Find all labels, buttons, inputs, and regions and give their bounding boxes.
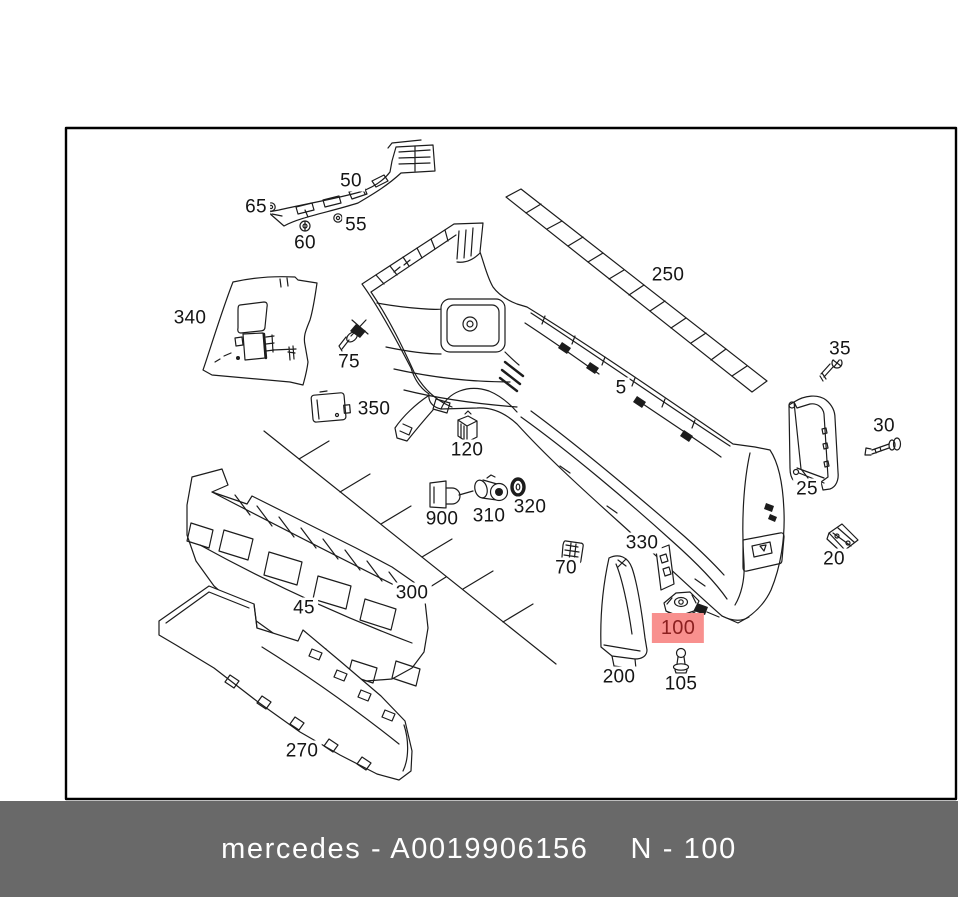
footer-part-number: mercedes - A0019906156 — [221, 833, 588, 866]
part-label-35[interactable]: 35 — [826, 339, 854, 360]
footer-caption-bar: mercedes - A0019906156 N - 100 — [0, 801, 958, 897]
part-label-60[interactable]: 60 — [291, 233, 319, 254]
part-label-75[interactable]: 75 — [335, 352, 363, 373]
part-label-350[interactable]: 350 — [355, 399, 394, 420]
part-label-270[interactable]: 270 — [283, 741, 322, 762]
part-label-320[interactable]: 320 — [511, 497, 550, 518]
part-label-55[interactable]: 55 — [342, 215, 370, 236]
part-label-200[interactable]: 200 — [600, 667, 639, 688]
part-label-120[interactable]: 120 — [448, 440, 487, 461]
part-label-250[interactable]: 250 — [649, 265, 688, 286]
part-label-300[interactable]: 300 — [393, 583, 432, 604]
part-label-340[interactable]: 340 — [171, 308, 210, 329]
part-label-25[interactable]: 25 — [793, 479, 821, 500]
part-label-5[interactable]: 5 — [613, 378, 630, 399]
part-label-65[interactable]: 65 — [242, 197, 270, 218]
part-label-30[interactable]: 30 — [870, 416, 898, 437]
footer-reference: N - 100 — [631, 833, 737, 866]
part-label-310[interactable]: 310 — [470, 506, 509, 527]
part-label-330[interactable]: 330 — [623, 533, 662, 554]
parts-diagram-page: 50 65 55 60 340 75 350 250 5 35 30 25 20… — [0, 0, 958, 897]
part-label-45[interactable]: 45 — [290, 598, 318, 619]
part-label-900[interactable]: 900 — [423, 509, 462, 530]
part-labels: 50 65 55 60 340 75 350 250 5 35 30 25 20… — [0, 0, 958, 897]
part-label-20[interactable]: 20 — [820, 549, 848, 570]
part-label-70[interactable]: 70 — [552, 558, 580, 579]
part-label-100-highlighted[interactable]: 100 — [652, 613, 704, 643]
part-label-105[interactable]: 105 — [662, 674, 701, 695]
part-label-50[interactable]: 50 — [337, 171, 365, 192]
